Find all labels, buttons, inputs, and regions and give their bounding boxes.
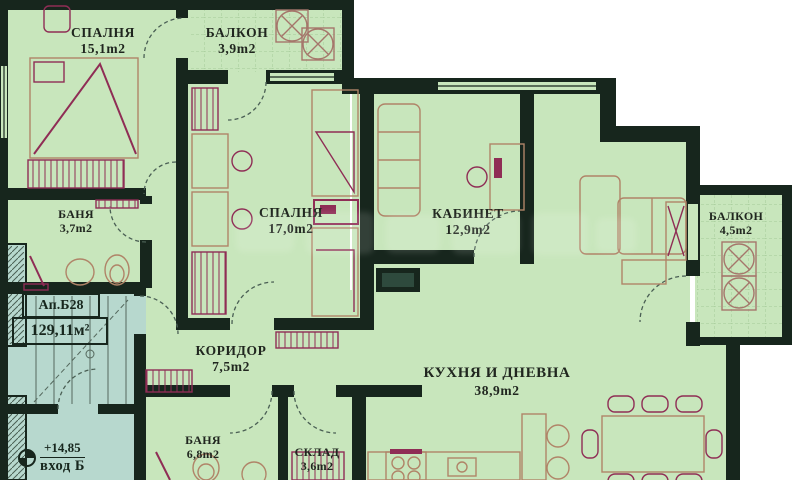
entrance-level: +14,85 [40, 440, 85, 458]
room-name: КОРИДОР [196, 343, 267, 359]
room-area: 3,9m2 [206, 41, 269, 57]
entrance-level-value: +14,85 [44, 440, 81, 455]
apartment-area-box: 129,11м² [12, 317, 108, 345]
corridor-shelf [276, 332, 338, 348]
room-label-balcony-1: БАЛКОН 3,9m2 [206, 25, 269, 57]
room-area: 3,6m2 [295, 459, 340, 473]
room-area: 15,1m2 [71, 41, 135, 57]
room-label-balcony-2: БАЛКОН 4,5m2 [709, 209, 763, 237]
room-name: БАЛКОН [709, 209, 763, 223]
floorplan-drawing [0, 0, 800, 480]
room-label-bath-1: БАНЯ 3,7m2 [58, 207, 94, 235]
room-area: 7,5m2 [196, 359, 267, 375]
entrance-label-value: вход Б [40, 458, 85, 474]
room-label-storage: СКЛАД 3,6m2 [295, 445, 340, 473]
room-label-bath-2: БАНЯ 6,8m2 [185, 433, 221, 461]
level-marker-icon [18, 449, 36, 467]
room-name: БАНЯ [58, 207, 94, 221]
room-label-corridor: КОРИДОР 7,5m2 [196, 343, 267, 375]
shoe-cabinet [146, 370, 192, 392]
room-name: СПАЛНЯ [71, 25, 135, 41]
room-area: 3,7m2 [58, 221, 94, 235]
floor-plan: СПАЛНЯ 15,1m2 БАЛКОН 3,9m2 БАНЯ 3,7m2 СП… [0, 0, 800, 480]
room-name: БАНЯ [185, 433, 221, 447]
room-area: 6,8m2 [185, 447, 221, 461]
entrance-label: вход Б [40, 458, 85, 475]
room-name: СКЛАД [295, 445, 340, 459]
room-area: 38,9m2 [424, 383, 571, 399]
room-area: 12,9m2 [432, 222, 504, 238]
room-label-bedroom-1: СПАЛНЯ 15,1m2 [71, 25, 135, 57]
room-label-bedroom-2: СПАЛНЯ 17,0m2 [259, 205, 323, 237]
room-name: СПАЛНЯ [259, 205, 323, 221]
room-area: 17,0m2 [259, 221, 323, 237]
apartment-id: Ап.Б28 [39, 298, 84, 314]
room-name: КУХНЯ И ДНЕВНА [424, 365, 571, 383]
room-label-living: КУХНЯ И ДНЕВНА 38,9m2 [424, 365, 571, 399]
room-name: БАЛКОН [206, 25, 269, 41]
wardrobe [28, 160, 124, 188]
apartment-id-box: Ап.Б28 [22, 293, 100, 318]
apartment-total-area: 129,11м² [31, 322, 90, 340]
room-label-office: КАБИНЕТ 12,9m2 [432, 206, 504, 238]
room-area: 4,5m2 [709, 223, 763, 237]
room-name: КАБИНЕТ [432, 206, 504, 222]
